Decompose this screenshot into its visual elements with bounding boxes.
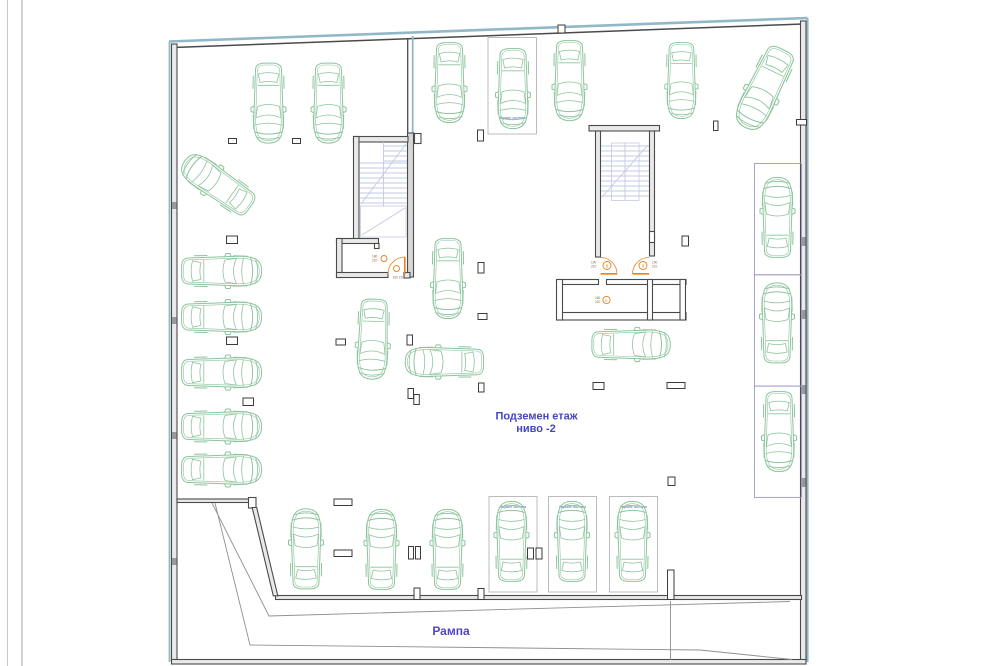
svg-text:210: 210 (591, 265, 597, 269)
svg-text:ниво -2: ниво -2 (516, 423, 556, 435)
svg-text:E: E (605, 298, 608, 303)
svg-text:210: 210 (372, 259, 378, 263)
svg-text:210: 210 (652, 265, 658, 269)
svg-text:190 210: 190 210 (393, 276, 405, 280)
svg-text:8: 8 (642, 263, 645, 268)
svg-text:Рампа: Рампа (432, 624, 470, 638)
svg-text:Подземен етаж: Подземен етаж (495, 411, 577, 423)
svg-text:210: 210 (595, 300, 601, 304)
svg-text:8: 8 (606, 263, 609, 268)
